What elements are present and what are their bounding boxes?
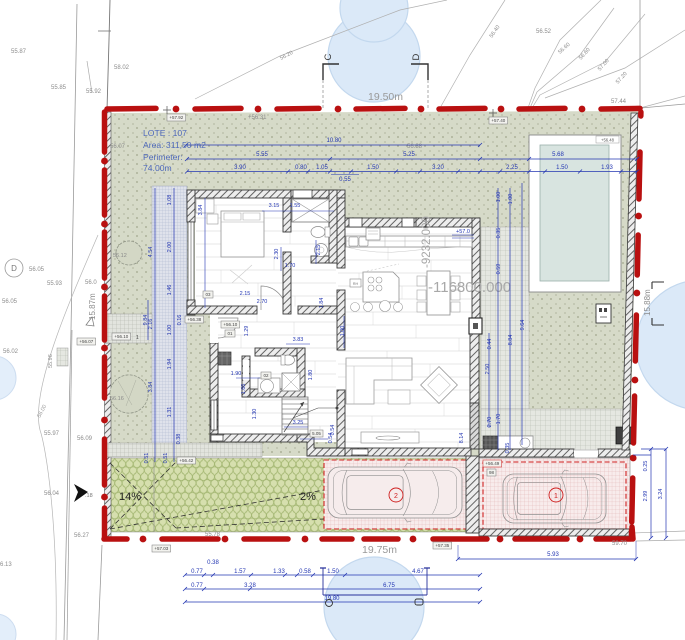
svg-text:19.50m: 19.50m — [368, 91, 403, 103]
svg-text:0.58: 0.58 — [299, 569, 311, 575]
svg-text:19.75m: 19.75m — [362, 544, 397, 556]
svg-text:14%: 14% — [119, 491, 141, 503]
svg-text:1.30: 1.30 — [252, 409, 258, 420]
svg-text:1.31: 1.31 — [167, 407, 173, 418]
svg-text:1.93: 1.93 — [601, 165, 613, 171]
svg-text:56.16: 56.16 — [110, 396, 124, 402]
svg-text:+56.42: +56.42 — [179, 458, 193, 463]
svg-text:0.59: 0.59 — [496, 264, 502, 275]
svg-text:3.25: 3.25 — [293, 420, 304, 426]
svg-text:5.55: 5.55 — [256, 152, 268, 158]
svg-text:+57.0: +57.0 — [456, 229, 470, 235]
svg-text:56.09: 56.09 — [77, 436, 93, 442]
svg-text:+57.35: +57.35 — [435, 543, 449, 548]
svg-text:0.51: 0.51 — [163, 453, 169, 464]
svg-text:+56.48: +56.48 — [601, 138, 615, 143]
svg-text:1.70: 1.70 — [496, 414, 502, 425]
svg-text:56.04: 56.04 — [44, 491, 60, 497]
svg-text:56.0: 56.0 — [85, 280, 97, 286]
svg-text:1.29: 1.29 — [244, 326, 250, 337]
svg-text:+57.40: +57.40 — [491, 118, 505, 123]
svg-text:5.25: 5.25 — [403, 152, 415, 158]
svg-text:3.84: 3.84 — [148, 382, 154, 393]
svg-text:1: 1 — [554, 493, 558, 500]
svg-text:1.00: 1.00 — [340, 326, 346, 337]
svg-text:55.96: 55.96 — [48, 354, 54, 368]
svg-text:2.70: 2.70 — [257, 299, 268, 305]
svg-text:56.12: 56.12 — [113, 253, 127, 259]
svg-text:+56.38: +56.38 — [187, 317, 201, 322]
svg-text:4.54: 4.54 — [148, 247, 154, 258]
svg-text:1.46: 1.46 — [167, 285, 173, 296]
svg-text:+56.10: +56.10 — [114, 334, 128, 339]
svg-text:2: 2 — [394, 493, 398, 500]
svg-text:59.70: 59.70 — [612, 541, 628, 547]
svg-text:10.80: 10.80 — [326, 138, 342, 144]
svg-text:2%: 2% — [300, 491, 316, 503]
svg-text:0.55: 0.55 — [339, 177, 351, 183]
svg-text:9.84: 9.84 — [143, 315, 149, 326]
svg-text:2.50: 2.50 — [485, 364, 491, 375]
svg-text:Perimeter:: Perimeter: — [143, 152, 183, 162]
svg-text:01: 01 — [227, 331, 233, 336]
svg-text:58.02: 58.02 — [114, 65, 130, 71]
svg-text:-9232.000: -9232.000 — [421, 216, 433, 268]
svg-text:6.13: 6.13 — [0, 562, 12, 568]
svg-text:0.77: 0.77 — [191, 569, 203, 575]
svg-text:0.38: 0.38 — [207, 560, 219, 566]
svg-text:2.00: 2.00 — [167, 242, 173, 253]
svg-text:+57.03: +57.03 — [154, 546, 168, 551]
svg-text:-116800.000: -116800.000 — [428, 279, 511, 296]
svg-text:1.70: 1.70 — [285, 263, 296, 269]
svg-text:0.35: 0.35 — [496, 228, 502, 239]
svg-text:55.85: 55.85 — [51, 85, 67, 91]
svg-text:15.87m: 15.87m — [88, 293, 97, 320]
svg-text:+56.31: +56.31 — [248, 115, 267, 121]
svg-text:0.44: 0.44 — [487, 339, 493, 350]
svg-text:3.83: 3.83 — [293, 337, 304, 343]
svg-text:55.87: 55.87 — [11, 49, 27, 55]
svg-text:8.84: 8.84 — [508, 335, 514, 346]
svg-text:8.14: 8.14 — [459, 433, 465, 444]
svg-text:1.00: 1.00 — [167, 325, 173, 336]
svg-text:LOTE : 107: LOTE : 107 — [143, 128, 187, 138]
svg-text:4.67: 4.67 — [412, 569, 424, 575]
svg-text:1.66: 1.66 — [241, 384, 247, 395]
svg-text:98: 98 — [489, 470, 495, 475]
svg-text:+56.49: +56.49 — [485, 461, 499, 466]
svg-text:1.90: 1.90 — [231, 371, 242, 377]
svg-text:0.77: 0.77 — [191, 583, 203, 589]
svg-text:55.93: 55.93 — [47, 281, 63, 287]
svg-text:1: 1 — [136, 335, 139, 341]
svg-text:1.50: 1.50 — [367, 165, 379, 171]
svg-text:C: C — [323, 53, 334, 60]
svg-text:0.25: 0.25 — [643, 461, 649, 472]
svg-text:55.97: 55.97 — [44, 431, 60, 437]
svg-text:1.80: 1.80 — [308, 370, 314, 381]
svg-text:2.70: 2.70 — [487, 417, 493, 428]
svg-text:57.44: 57.44 — [611, 99, 627, 105]
svg-text:+56.10: +56.10 — [223, 322, 237, 327]
svg-text:56.07: 56.07 — [110, 144, 126, 150]
svg-text:3.90: 3.90 — [234, 165, 246, 171]
svg-text:56.05: 56.05 — [29, 267, 45, 273]
svg-text:0.51: 0.51 — [144, 453, 150, 464]
svg-text:1.50: 1.50 — [556, 165, 568, 171]
svg-text:56.27: 56.27 — [74, 533, 90, 539]
svg-text:1.94: 1.94 — [167, 359, 173, 370]
svg-text:55.92: 55.92 — [86, 89, 102, 95]
svg-text:1.50: 1.50 — [327, 569, 339, 575]
svg-text:2.15: 2.15 — [316, 245, 322, 256]
svg-text:1.05: 1.05 — [316, 165, 328, 171]
svg-text:3.84: 3.84 — [198, 205, 204, 216]
svg-text:5.93: 5.93 — [547, 552, 559, 558]
svg-text:74.00m: 74.00m — [143, 163, 172, 173]
svg-text:55.78: 55.78 — [205, 532, 221, 538]
svg-text:02: 02 — [263, 373, 269, 378]
svg-text:9.64: 9.64 — [520, 320, 526, 331]
svg-text:3.20: 3.20 — [432, 165, 444, 171]
svg-text:5.68: 5.68 — [552, 152, 564, 158]
svg-text:RH: RH — [353, 282, 359, 286]
svg-text:2.99: 2.99 — [643, 491, 649, 502]
svg-text:1.33: 1.33 — [273, 569, 285, 575]
svg-text:3.24: 3.24 — [658, 489, 664, 500]
svg-text:D: D — [411, 53, 422, 60]
svg-text:03: 03 — [205, 292, 211, 297]
svg-text:1.08: 1.08 — [167, 195, 173, 206]
svg-text:.18: .18 — [85, 493, 93, 499]
svg-text:5.05: 5.05 — [312, 431, 321, 436]
svg-text:1.55: 1.55 — [290, 203, 301, 209]
svg-text:0.38: 0.38 — [176, 434, 182, 445]
svg-text:15.88m: 15.88m — [643, 289, 652, 316]
svg-text:1.00: 1.00 — [508, 194, 514, 205]
svg-text:2.25: 2.25 — [506, 165, 518, 171]
svg-text:0.54: 0.54 — [330, 425, 336, 436]
svg-text:+57.92: +57.92 — [169, 115, 183, 120]
svg-text:0.16: 0.16 — [177, 315, 183, 326]
svg-text:3.15: 3.15 — [269, 203, 280, 209]
svg-text:3.28: 3.28 — [244, 583, 256, 589]
svg-text:0.80: 0.80 — [295, 165, 307, 171]
svg-text:D: D — [11, 264, 17, 273]
svg-text:56.52: 56.52 — [536, 29, 552, 35]
svg-text:1.57: 1.57 — [234, 569, 246, 575]
svg-text:56.02: 56.02 — [3, 349, 19, 355]
svg-text:2.15: 2.15 — [240, 291, 251, 297]
svg-text:2.30: 2.30 — [274, 249, 280, 260]
svg-text:1.84: 1.84 — [319, 298, 325, 309]
svg-text:0.35: 0.35 — [505, 443, 511, 454]
svg-text:1.00: 1.00 — [496, 192, 502, 203]
svg-text:56.05: 56.05 — [2, 299, 18, 305]
svg-text:Area: 311,50 m2: Area: 311,50 m2 — [143, 140, 206, 150]
svg-text:6.75: 6.75 — [383, 583, 395, 589]
svg-text:+56.07: +56.07 — [79, 339, 93, 344]
